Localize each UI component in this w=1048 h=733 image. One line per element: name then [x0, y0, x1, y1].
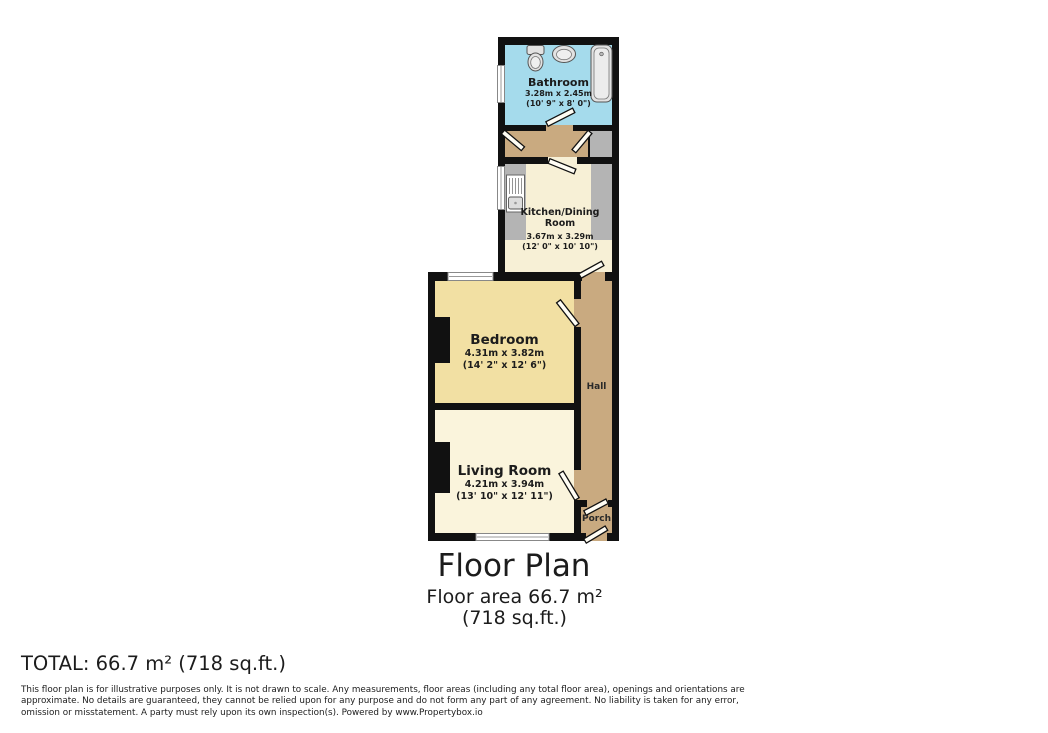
bathroom-label: Bathroom 3.28m x 2.45m (10' 9" x 8' 0"): [505, 76, 612, 108]
bedroom-dims-metric: 4.31m x 3.82m: [435, 348, 574, 360]
cupboard-region: [590, 131, 612, 157]
bedroom-label: Bedroom 4.31m x 3.82m (14' 2" x 12' 6"): [435, 332, 574, 371]
bathroom-dims-imperial: (10' 9" x 8' 0"): [505, 99, 612, 109]
landing-region: [505, 131, 588, 157]
bedroom-name: Bedroom: [435, 332, 574, 348]
bathroom-name: Bathroom: [505, 76, 612, 89]
page-title: Floor Plan: [354, 549, 674, 583]
living-room-dims-imperial: (13' 10" x 12' 11"): [435, 491, 574, 503]
porch-label: Porch: [581, 514, 612, 524]
living-room-name: Living Room: [435, 463, 574, 479]
kitchen-label: Kitchen/Dining Room 3.67m x 3.29m (12' 0…: [514, 207, 606, 251]
living-room-door-opening: [574, 470, 581, 500]
bedroom-dims-imperial: (14' 2" x 12' 6"): [435, 360, 574, 372]
living-room-dims-metric: 4.21m x 3.94m: [435, 479, 574, 491]
kitchen-dims-imperial: (12' 0" x 10' 10"): [514, 242, 606, 252]
disclaimer-text: This floor plan is for illustrative purp…: [21, 685, 770, 719]
porch-entry-door-opening: [586, 533, 607, 541]
floorplan-page: Bathroom 3.28m x 2.45m (10' 9" x 8' 0") …: [0, 0, 1048, 733]
kitchen-door-opening: [548, 157, 577, 164]
bathroom-door-opening: [546, 125, 573, 131]
total-area-text: TOTAL: 66.7 m² (718 sq.ft.): [21, 652, 286, 675]
floor-area-subtitle: Floor area 66.7 m² (718 sq.ft.): [405, 587, 624, 628]
bathroom-dims-metric: 3.28m x 2.45m: [505, 89, 612, 99]
living-room-label: Living Room 4.21m x 3.94m (13' 10" x 12'…: [435, 463, 574, 502]
kitchen-hall-door-opening: [582, 272, 605, 281]
kitchen-name: Kitchen/Dining Room: [514, 207, 606, 229]
hall-porch-door-opening: [587, 500, 608, 507]
bedroom-door-opening: [574, 299, 581, 327]
kitchen-dims-metric: 3.67m x 3.29m: [514, 232, 606, 242]
hall-label: Hall: [581, 382, 612, 392]
